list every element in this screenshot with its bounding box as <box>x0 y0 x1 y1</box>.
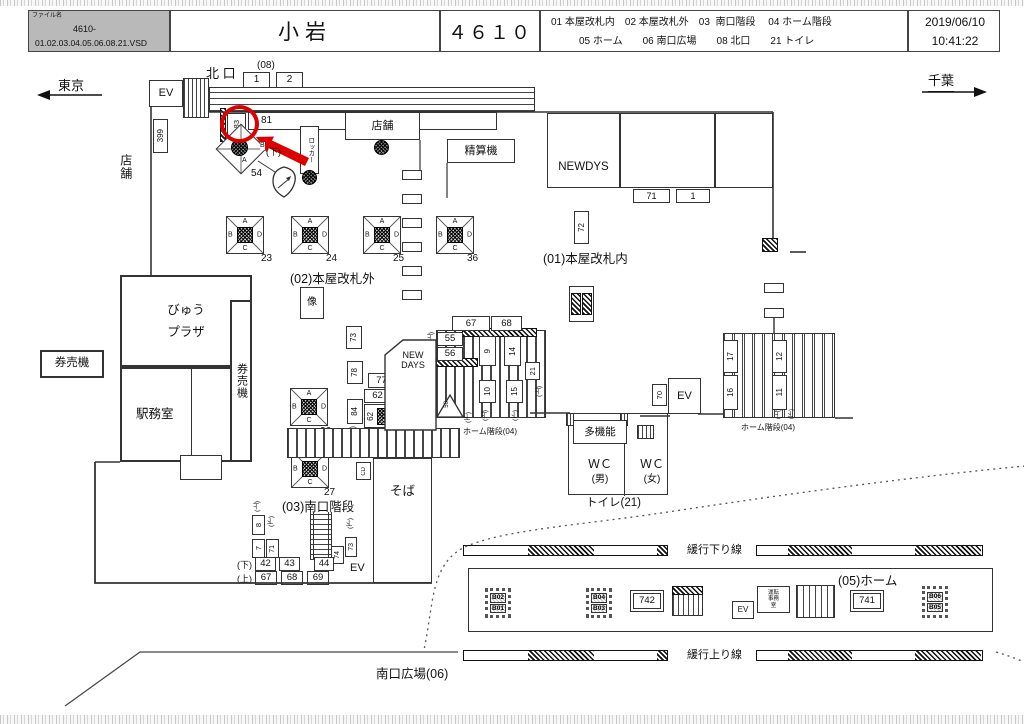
pillar-54-label: 54 <box>251 168 262 180</box>
pillar-54-letter-a: A <box>242 157 247 165</box>
down-note-arrow: (下) <box>266 147 281 157</box>
tokyo-arrow <box>37 90 102 100</box>
chiba-arrow <box>922 87 987 97</box>
highlight-arrow <box>256 137 309 167</box>
triangle-50-label: 50 <box>444 401 451 408</box>
newdays-kiosk-label: NEWDAYS <box>393 350 433 371</box>
pillar-54-letter-b: B <box>260 142 265 150</box>
station-map-page: ファイル名 4610- 01.02.03.04.05.06.08.21.VSD … <box>0 0 1024 724</box>
highlight-circle <box>220 105 259 143</box>
linework-layer <box>0 0 1024 724</box>
